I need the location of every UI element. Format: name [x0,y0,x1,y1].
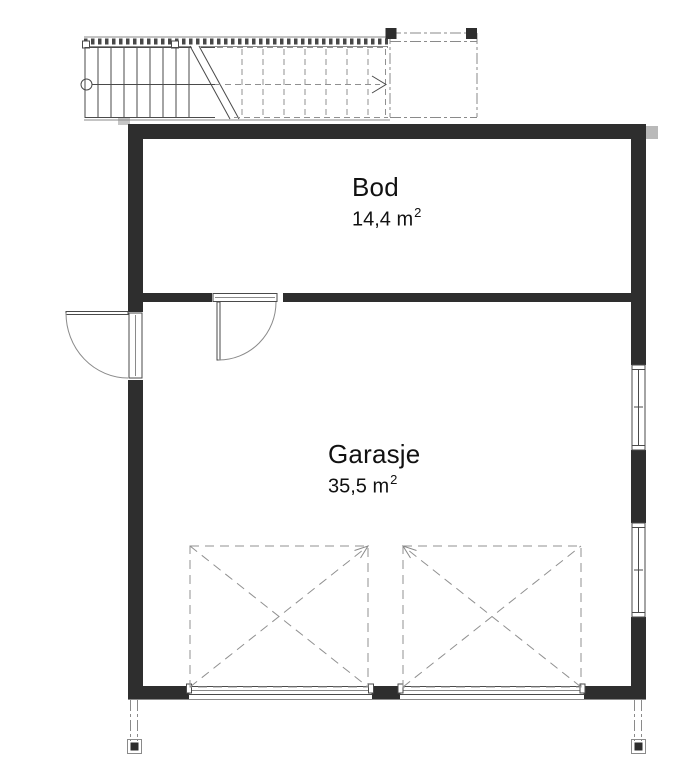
wall-bottom-right [584,686,646,700]
landing-platform [386,28,478,118]
floor-plan-canvas: Bod 14,4 m2 Garasje 35,5 m2 [0,0,680,780]
garage-door-swing-left [190,546,368,687]
room-area: 14,4 m2 [352,202,420,232]
area-superscript: 2 [414,205,421,220]
window-upper [632,365,645,450]
stair-flight-dashed [217,48,388,118]
external-stair [81,37,390,120]
column-footing-left [128,700,142,754]
stair-break-line [190,46,240,119]
wall-right-mid [631,450,646,523]
interior-door-leaf [217,302,220,360]
stair-walking-line [81,76,386,93]
wall-right-upper [631,124,646,365]
area-superscript: 2 [390,472,397,487]
exterior-door [66,312,142,379]
room-name: Bod [352,172,420,202]
column-footing-right [632,700,646,754]
exterior-door-leaf [66,312,128,315]
swing-arrowhead [403,546,417,558]
garage-door-opening-left [187,684,374,695]
room-label-garasje: Garasje 35,5 m2 [328,439,420,499]
wall-left-lower [128,380,143,700]
interior-door-swing-arc [219,302,277,360]
wall-interior-left [143,293,212,302]
stair-railing [83,37,391,48]
garage-door-swing-right [403,546,581,687]
garage-door-opening-right [398,684,585,695]
window-lower [632,523,645,617]
stair-flight-solid [85,48,215,118]
exterior-door-swing-arc [66,313,128,378]
wall-top [128,124,646,139]
room-label-bod: Bod 14,4 m2 [352,172,420,232]
wall-bottom-pier [372,686,400,700]
platform-post-right [466,28,477,39]
wall-interior-right [283,293,631,302]
platform-post-left [386,28,397,39]
room-area: 35,5 m2 [328,469,420,499]
wall-left-upper [128,124,143,312]
interior-door [213,294,277,361]
swing-arrowhead [355,546,369,558]
wall-bottom-left [128,686,189,700]
room-name: Garasje [328,439,420,469]
floor-plan-drawing [0,0,680,780]
